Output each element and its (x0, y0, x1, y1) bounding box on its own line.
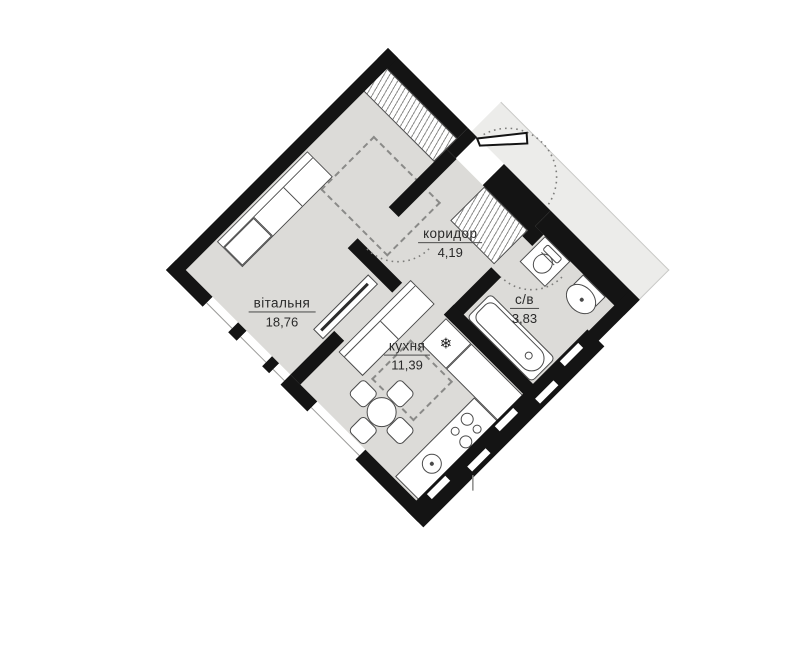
sink-drain (579, 297, 585, 303)
room-label-bathroom: с/в 3,83 (510, 292, 539, 326)
room-area: 11,39 (384, 356, 430, 373)
room-label-living: вітальня 18,76 (249, 295, 316, 329)
room-label-corridor: коридор 4,19 (418, 226, 482, 260)
room-name: с/в (510, 292, 539, 309)
apartment-plan: ❄ вітальня 1 (166, 48, 640, 522)
room-area: 18,76 (249, 312, 316, 329)
room-name: кухня (384, 339, 430, 356)
room-label-kitchen: кухня 11,39 (384, 339, 430, 373)
room-name: коридор (418, 226, 482, 243)
floor-plan-canvas: ❄ вітальня 1 (0, 0, 787, 657)
room-area: 3,83 (510, 309, 539, 326)
stove-burner (449, 425, 462, 438)
room-area: 4,19 (418, 243, 482, 260)
room-name: вітальня (249, 295, 316, 312)
